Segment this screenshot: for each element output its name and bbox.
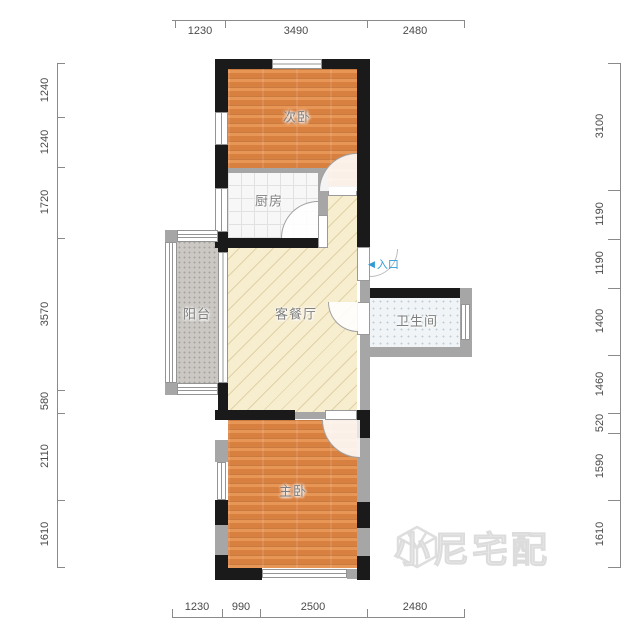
bathroom-door-leaf [357, 302, 370, 335]
watermark-text: 小尼宅配 [394, 521, 550, 573]
window [215, 188, 228, 232]
wall-segment [215, 59, 228, 112]
wall-segment [357, 502, 370, 528]
floor-plan: 次卧 厨房 客餐厅 阳台 卫生间 主卧 ◀ 入口 1230 3490 2480 … [0, 0, 640, 640]
master-bedroom-door-opening [325, 410, 357, 420]
dim-tick [608, 433, 620, 434]
wall-segment [357, 528, 370, 556]
wall-segment [215, 525, 228, 555]
dim-tick [608, 500, 620, 501]
dim-tick [464, 609, 465, 617]
watermark: 小尼宅配 [394, 524, 440, 570]
wall-segment [357, 196, 370, 247]
dim-tick [608, 413, 620, 414]
bathroom-top-wall [360, 288, 472, 298]
dim-label: 990 [232, 601, 250, 613]
dim-tick [175, 20, 176, 28]
dim-label: 1610 [594, 522, 606, 546]
wall-segment [215, 568, 262, 580]
dim-label: 1230 [185, 601, 209, 613]
dim-label: 1240 [39, 78, 51, 102]
room-label-master-bedroom: 主卧 [279, 481, 307, 500]
dim-tick [222, 609, 223, 617]
dim-label: 2110 [39, 444, 51, 468]
dim-tick [57, 500, 65, 501]
dim-tick [608, 190, 620, 191]
dimension-line-bottom [172, 617, 465, 618]
window [262, 569, 347, 578]
wall-segment [357, 568, 370, 580]
dim-label: 1400 [594, 309, 606, 333]
wall-segment [215, 500, 228, 525]
balcony-window [177, 383, 218, 395]
room-label-bathroom: 卫生间 [396, 311, 438, 330]
dim-label: 1190 [594, 251, 606, 275]
balcony-window [177, 230, 218, 242]
kitchen-bottom-wall [215, 238, 328, 248]
dim-tick [57, 567, 65, 568]
dim-label: 2480 [403, 601, 427, 613]
dim-label: 1590 [594, 454, 606, 478]
entrance-annotation: ◀ 入口 [368, 256, 399, 272]
wall-segment [218, 238, 228, 252]
window [461, 304, 470, 340]
dim-tick [57, 238, 65, 239]
dim-label: 2500 [301, 601, 325, 613]
wall-segment [215, 145, 228, 188]
window [272, 59, 322, 69]
dim-tick [225, 20, 226, 28]
dim-tick [57, 413, 65, 414]
dim-label: 1240 [39, 130, 51, 154]
dimension-line-left [57, 63, 58, 568]
dim-label: 520 [594, 414, 606, 432]
balcony-corner [165, 230, 177, 242]
dim-tick [464, 20, 465, 28]
room-label-balcony: 阳台 [183, 304, 211, 323]
wall-segment [357, 59, 370, 196]
room-label-kitchen: 厨房 [255, 191, 283, 210]
dim-tick [608, 288, 620, 289]
room-label-living-dining: 客餐厅 [275, 304, 317, 323]
wall-segment [347, 569, 357, 579]
bathroom-bottom-wall [360, 347, 472, 357]
dim-tick [608, 567, 620, 568]
wall-segment [215, 410, 295, 420]
dim-tick [57, 63, 65, 64]
dimension-line-top [172, 20, 465, 21]
wall-segment [215, 440, 228, 462]
dim-label: 3100 [594, 114, 606, 138]
dim-tick [57, 117, 65, 118]
wall-segment [360, 357, 370, 410]
dim-tick [608, 355, 620, 356]
wall-segment [295, 412, 325, 419]
balcony-living-window [218, 252, 228, 383]
dim-label: 3490 [284, 25, 308, 37]
room-label-secondary-bedroom: 次卧 [283, 107, 311, 126]
window [217, 462, 226, 500]
dim-label: 1720 [39, 190, 51, 214]
balcony-window [165, 242, 177, 383]
entrance-label: 入口 [377, 256, 399, 272]
entrance-arrow-icon: ◀ [368, 259, 375, 270]
wall-segment [360, 281, 370, 298]
dimension-line-right [620, 63, 621, 568]
dim-tick [260, 609, 261, 617]
dim-label: 2480 [403, 25, 427, 37]
dim-label: 3570 [39, 302, 51, 326]
dim-tick [608, 239, 620, 240]
dim-tick [57, 390, 65, 391]
window [215, 112, 228, 145]
dim-tick [172, 609, 173, 617]
dim-tick [367, 20, 368, 28]
dim-label: 580 [39, 392, 51, 410]
dim-tick [57, 167, 65, 168]
dim-tick [608, 63, 620, 64]
kitchen-door-leaf [318, 215, 328, 248]
dim-label: 1230 [188, 25, 212, 37]
dim-label: 1610 [39, 522, 51, 546]
balcony-corner [165, 383, 177, 395]
dim-tick [367, 609, 368, 617]
dim-label: 1190 [594, 202, 606, 226]
dim-label: 1460 [594, 372, 606, 396]
